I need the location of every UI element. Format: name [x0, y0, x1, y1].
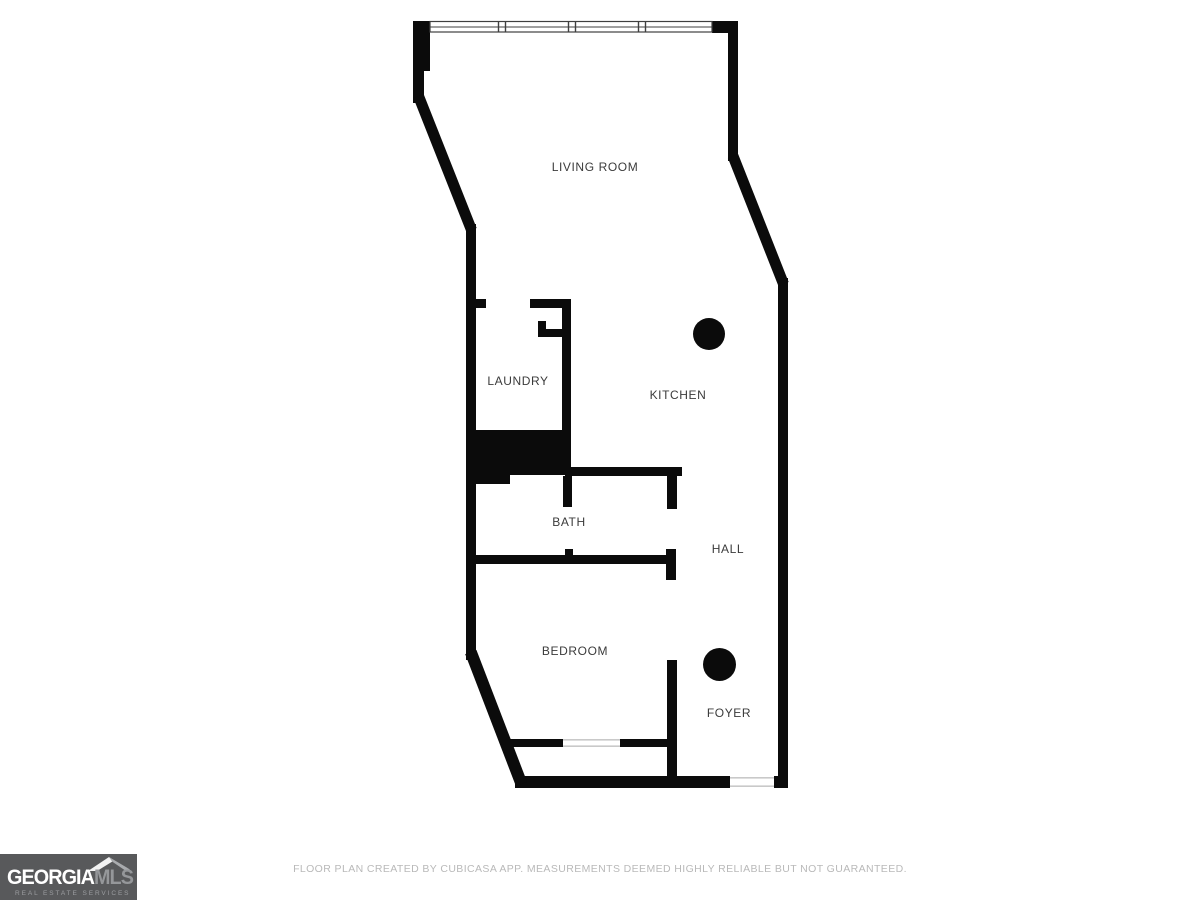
bedroom-window-line	[563, 745, 620, 747]
room-label-living-room: LIVING ROOM	[552, 160, 639, 174]
laundry-wall-notch-v	[538, 321, 546, 337]
utility-black-block	[466, 430, 571, 475]
bedroom-door-jamb	[666, 549, 676, 580]
entry-threshold-line	[730, 785, 774, 787]
living-room-window	[430, 22, 712, 33]
room-label-hall: HALL	[712, 542, 744, 556]
logo-tagline: REAL ESTATE SERVICES	[15, 890, 130, 897]
entry-threshold-line	[730, 777, 774, 779]
wall-corner-top-right	[712, 21, 738, 33]
bath-bottom-wall-tick	[565, 549, 573, 555]
bath-partition-stub	[563, 476, 572, 507]
georgia-mls-logo: GEORGIAMLS REAL ESTATE SERVICES	[0, 854, 137, 900]
column-foyer	[703, 648, 736, 681]
utility-black-ledge	[470, 475, 510, 484]
wall-diagonal-top-right	[733, 156, 784, 284]
bedroom-right-wall	[667, 660, 677, 788]
wall-left-upper	[413, 21, 424, 103]
floor-plan-page: LIVING ROOM LAUNDRY KITCHEN BATH HALL BE…	[0, 0, 1200, 900]
wall-bottom	[515, 776, 730, 788]
logo-brand-text: GEORGIAMLS	[7, 865, 133, 890]
bath-top-wall	[565, 467, 682, 476]
laundry-right-wall	[562, 299, 571, 432]
footer-disclaimer: FLOOR PLAN CREATED BY CUBICASA APP. MEAS…	[0, 863, 1200, 875]
wall-right-main	[778, 278, 788, 788]
wall-right-upper	[728, 21, 738, 161]
room-label-bedroom: BEDROOM	[542, 644, 608, 658]
logo-brand-primary: GEORGIA	[7, 865, 94, 889]
bedroom-bottom-wall-right	[620, 739, 670, 747]
logo-brand-secondary: MLS	[94, 865, 133, 889]
bath-bottom-wall	[466, 555, 670, 564]
bath-door-jamb	[667, 476, 677, 509]
laundry-top-wall-left	[466, 299, 486, 308]
room-label-bath: BATH	[552, 515, 586, 529]
wall-diagonal-bottom-left	[471, 652, 522, 784]
wall-diagonal-top-left	[419, 96, 472, 230]
bedroom-bottom-wall-left	[503, 739, 563, 747]
column-kitchen	[693, 318, 725, 350]
room-label-kitchen: KITCHEN	[650, 388, 707, 402]
bedroom-window-line	[563, 739, 620, 741]
room-label-laundry: LAUNDRY	[487, 374, 548, 388]
room-label-foyer: FOYER	[707, 706, 751, 720]
floor-plan-drawing	[0, 0, 1200, 900]
